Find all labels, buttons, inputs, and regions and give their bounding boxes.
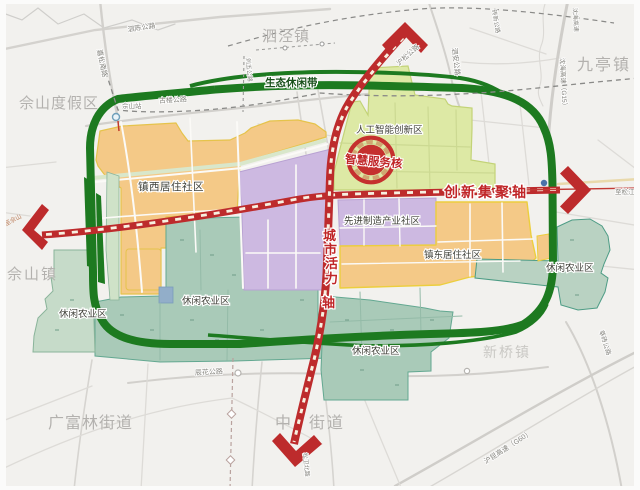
svg-text:活: 活 — [325, 256, 338, 271]
svg-text:先进制造产业社区: 先进制造产业社区 — [344, 215, 421, 227]
svg-text:佘山镇: 佘山镇 — [7, 265, 58, 283]
svg-text:新桥镇: 新桥镇 — [483, 344, 531, 360]
svg-text:创新集聚轴: 创新集聚轴 — [443, 184, 529, 200]
svg-text:广富林街道: 广富林街道 — [48, 414, 133, 432]
svg-text:城: 城 — [323, 228, 336, 243]
svg-text:市: 市 — [324, 242, 337, 257]
svg-text:佘山站: 佘山站 — [122, 101, 142, 110]
svg-text:生态休闲带: 生态休闲带 — [265, 76, 318, 89]
svg-text:街道: 街道 — [309, 414, 345, 432]
svg-text:镇东居住社区: 镇东居住社区 — [424, 249, 482, 261]
svg-text:人工智能创新区: 人工智能创新区 — [356, 124, 423, 136]
svg-text:轴: 轴 — [322, 295, 335, 310]
svg-text:九亭镇: 九亭镇 — [577, 56, 631, 74]
svg-text:中: 中 — [275, 414, 291, 432]
svg-text:佘山度假区: 佘山度假区 — [19, 94, 99, 112]
svg-text:泗泾镇: 泗泾镇 — [262, 28, 310, 45]
svg-text:至松江: 至松江 — [615, 187, 635, 196]
svg-text:休闲农业区: 休闲农业区 — [546, 262, 594, 274]
svg-text:休闲农业区: 休闲农业区 — [182, 295, 230, 307]
svg-text:休闲农业区: 休闲农业区 — [59, 308, 107, 320]
svg-text:镇西居住社区: 镇西居住社区 — [138, 180, 204, 193]
svg-text:力: 力 — [325, 271, 338, 286]
svg-text:休闲农业区: 休闲农业区 — [352, 345, 400, 357]
